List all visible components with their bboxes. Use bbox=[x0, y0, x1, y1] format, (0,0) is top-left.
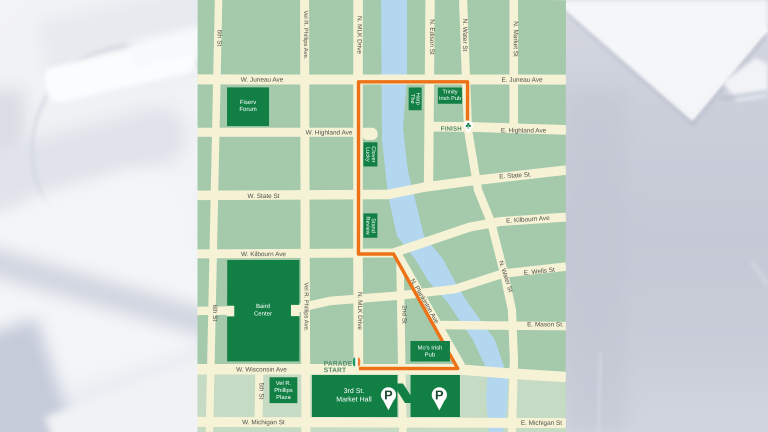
svg-text:Harp: Harp bbox=[414, 93, 420, 105]
svg-text:E. Mason St.: E. Mason St. bbox=[527, 321, 564, 328]
svg-text:Market Hall: Market Hall bbox=[336, 396, 372, 403]
svg-text:3rd St.: 3rd St. bbox=[344, 388, 365, 395]
svg-text:Baird: Baird bbox=[256, 304, 270, 310]
svg-text:Stand: Stand bbox=[370, 218, 376, 233]
svg-text:P: P bbox=[384, 387, 393, 402]
svg-text:Vel R.: Vel R. bbox=[276, 381, 292, 387]
svg-text:Fiserv: Fiserv bbox=[240, 100, 256, 106]
svg-text:Clover: Clover bbox=[370, 146, 376, 162]
svg-text:W. Wisconsin Ave: W. Wisconsin Ave bbox=[236, 366, 287, 373]
svg-text:6th St: 6th St bbox=[211, 305, 218, 322]
svg-text:W. Michigan St: W. Michigan St bbox=[242, 419, 285, 426]
svg-text:Lucky: Lucky bbox=[364, 147, 370, 162]
svg-text:W. Kilbourn Ave: W. Kilbourn Ave bbox=[241, 251, 286, 258]
svg-text:Plaza: Plaza bbox=[276, 395, 291, 401]
svg-text:Center: Center bbox=[254, 311, 272, 317]
svg-text:5th St: 5th St bbox=[257, 383, 264, 400]
svg-text:W. Juneau Ave: W. Juneau Ave bbox=[241, 77, 284, 84]
svg-text:N. Water St: N. Water St bbox=[461, 19, 468, 52]
svg-text:Trinity: Trinity bbox=[443, 90, 458, 96]
svg-text:Forum: Forum bbox=[239, 107, 256, 113]
svg-text:The: The bbox=[409, 94, 415, 104]
svg-text:N. MLK Drive: N. MLK Drive bbox=[356, 292, 363, 330]
svg-text:E. Highland Ave: E. Highland Ave bbox=[501, 127, 547, 134]
svg-text:FINISH: FINISH bbox=[441, 126, 462, 133]
svg-text:START: START bbox=[324, 367, 347, 374]
svg-text:N. Edison St: N. Edison St bbox=[428, 19, 435, 55]
svg-text:Pub: Pub bbox=[425, 353, 435, 359]
svg-text:E. Juneau Ave: E. Juneau Ave bbox=[501, 77, 543, 84]
svg-text:Vel R. Phillips Ave.: Vel R. Phillips Ave. bbox=[302, 282, 308, 331]
svg-text:P: P bbox=[435, 387, 444, 402]
svg-text:6th St: 6th St bbox=[216, 30, 223, 47]
svg-text:E. Michigan St: E. Michigan St bbox=[521, 420, 562, 427]
svg-text:Irish Pub: Irish Pub bbox=[439, 96, 461, 102]
svg-text:N. Market St: N. Market St bbox=[512, 21, 519, 57]
svg-text:Review: Review bbox=[364, 216, 370, 235]
svg-text:N. MLK Drive: N. MLK Drive bbox=[356, 16, 363, 54]
svg-text:Phillips: Phillips bbox=[274, 388, 292, 394]
svg-text:Mo's Irish: Mo's Irish bbox=[418, 346, 443, 352]
svg-text:2nd St: 2nd St bbox=[400, 305, 407, 324]
svg-text:W. Highland Ave: W. Highland Ave bbox=[306, 129, 353, 136]
svg-text:W. State St: W. State St bbox=[248, 193, 280, 200]
svg-text:Vel R. Phillips Ave.: Vel R. Phillips Ave. bbox=[302, 10, 308, 59]
